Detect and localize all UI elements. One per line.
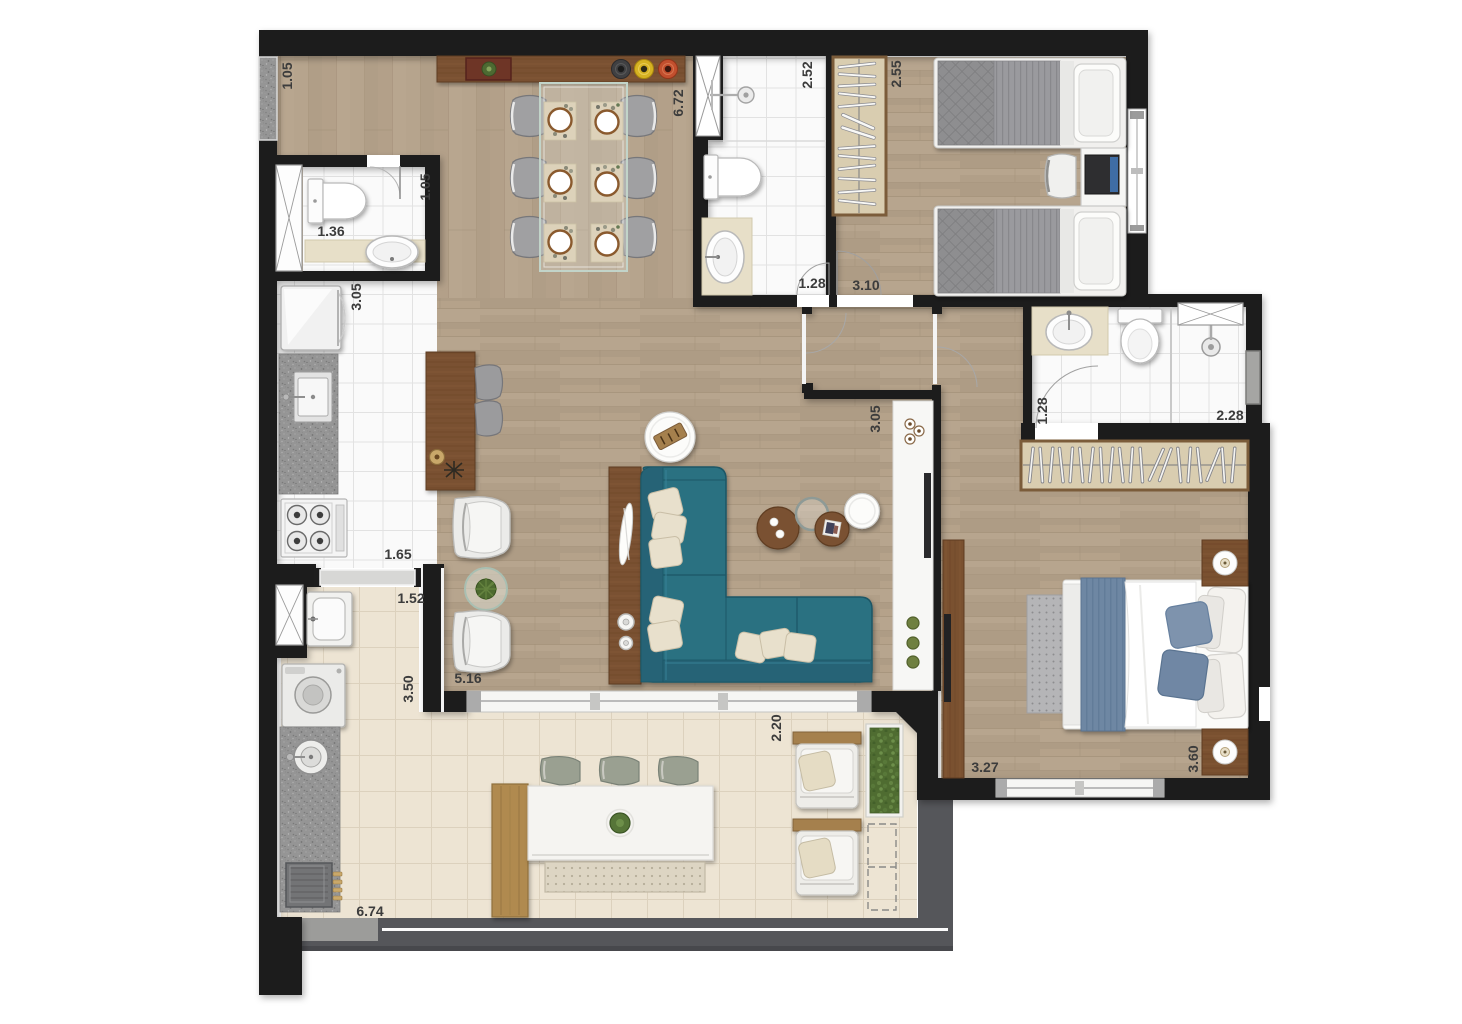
- svg-text:3.27: 3.27: [971, 759, 998, 775]
- svg-text:5.16: 5.16: [454, 670, 481, 686]
- svg-text:1.28: 1.28: [1034, 397, 1050, 424]
- svg-text:6.72: 6.72: [670, 89, 686, 116]
- svg-text:3.10: 3.10: [852, 277, 879, 293]
- svg-text:2.52: 2.52: [799, 61, 815, 88]
- svg-text:3.60: 3.60: [1185, 745, 1201, 772]
- svg-text:1.65: 1.65: [384, 546, 411, 562]
- svg-text:2.55: 2.55: [888, 60, 904, 87]
- svg-text:1.52: 1.52: [397, 590, 424, 606]
- svg-text:6.74: 6.74: [356, 903, 383, 919]
- svg-text:1.28: 1.28: [798, 275, 825, 291]
- svg-text:1.05: 1.05: [279, 62, 295, 89]
- svg-text:3.50: 3.50: [400, 675, 416, 702]
- svg-text:3.05: 3.05: [348, 283, 364, 310]
- svg-text:2.20: 2.20: [768, 714, 784, 741]
- svg-text:1.36: 1.36: [317, 223, 344, 239]
- svg-text:3.05: 3.05: [867, 405, 883, 432]
- svg-text:2.28: 2.28: [1216, 407, 1243, 423]
- svg-text:1.05: 1.05: [417, 173, 433, 200]
